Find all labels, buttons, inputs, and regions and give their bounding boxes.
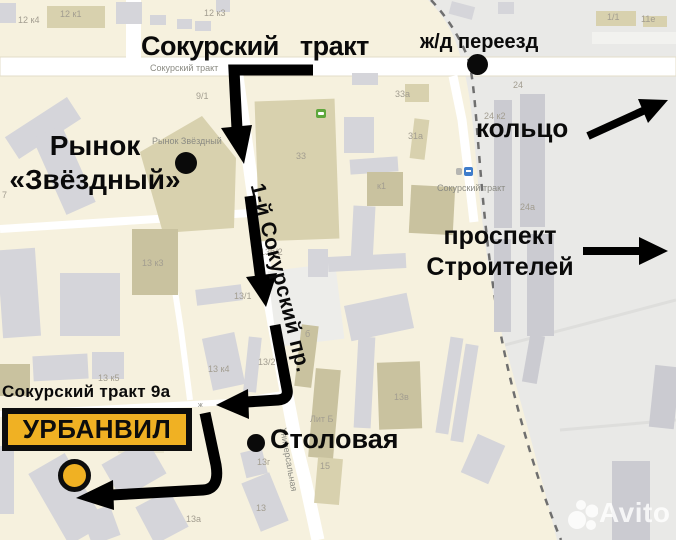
annotation-ring: кольцо: [476, 114, 568, 144]
canteen-dot: [247, 434, 265, 452]
route-arrowhead-down-1: [221, 125, 252, 164]
annotation-address: Сокурский тракт 9а: [2, 382, 170, 402]
route-arrowhead-left-1: [216, 389, 249, 419]
annotation-market: Рынок «Звёздный»: [0, 129, 190, 197]
map-canvas: 12 к4 12 к1 12 к3 Сокурский тракт 9/1 33…: [0, 0, 676, 540]
annotation-market-line2: «Звёздный»: [0, 163, 190, 197]
route-segment-1: [234, 70, 313, 129]
brand-plate: УРБАНВИЛ: [2, 408, 192, 451]
annotation-avenue: проспект Строителей: [410, 221, 590, 283]
destination-pin: [58, 459, 91, 492]
watermark-brand: Avito: [599, 497, 670, 529]
annotation-canteen: Столовая: [270, 424, 399, 455]
railway-crossing-dot: [467, 54, 488, 75]
ring-arrow-shaft: [588, 110, 645, 136]
watermark: Avito: [566, 495, 676, 535]
annotation-title: Сокурский тракт: [141, 31, 369, 62]
annotation-railway-crossing: ж/д переезд: [420, 31, 538, 54]
avenue-arrowhead: [639, 237, 668, 265]
annotation-market-line1: Рынок: [0, 129, 190, 163]
avito-logo-icon: [566, 495, 598, 533]
annotation-avenue-line2: Строителей: [410, 252, 590, 283]
annotation-avenue-line1: проспект: [410, 221, 590, 252]
